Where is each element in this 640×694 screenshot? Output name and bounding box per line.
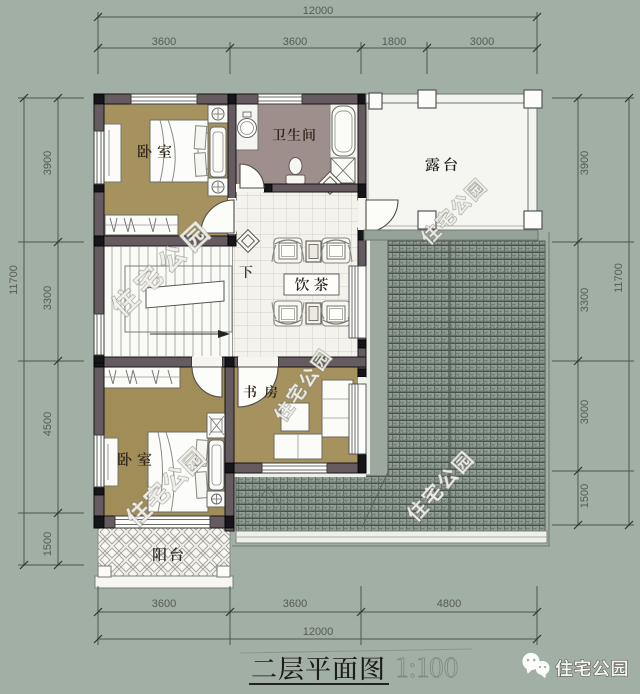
- svg-text:3300: 3300: [42, 286, 54, 310]
- svg-text:1500: 1500: [42, 532, 54, 556]
- svg-text:3000: 3000: [579, 400, 591, 424]
- svg-text:12000: 12000: [303, 626, 334, 638]
- svg-text:3900: 3900: [579, 151, 591, 175]
- svg-text:3600: 3600: [283, 36, 307, 48]
- svg-text:3600: 3600: [283, 598, 307, 610]
- svg-text:4800: 4800: [437, 598, 461, 610]
- svg-text:3900: 3900: [42, 151, 54, 175]
- svg-text:3600: 3600: [152, 598, 176, 610]
- svg-text:1500: 1500: [579, 484, 591, 508]
- svg-text:11700: 11700: [8, 265, 20, 295]
- svg-text:3600: 3600: [152, 36, 176, 48]
- svg-text:12000: 12000: [303, 5, 334, 17]
- svg-text:3000: 3000: [470, 36, 494, 48]
- svg-text:1800: 1800: [382, 36, 406, 48]
- svg-text:4500: 4500: [42, 412, 54, 436]
- svg-text:11700: 11700: [613, 263, 625, 293]
- svg-text:3300: 3300: [579, 288, 591, 312]
